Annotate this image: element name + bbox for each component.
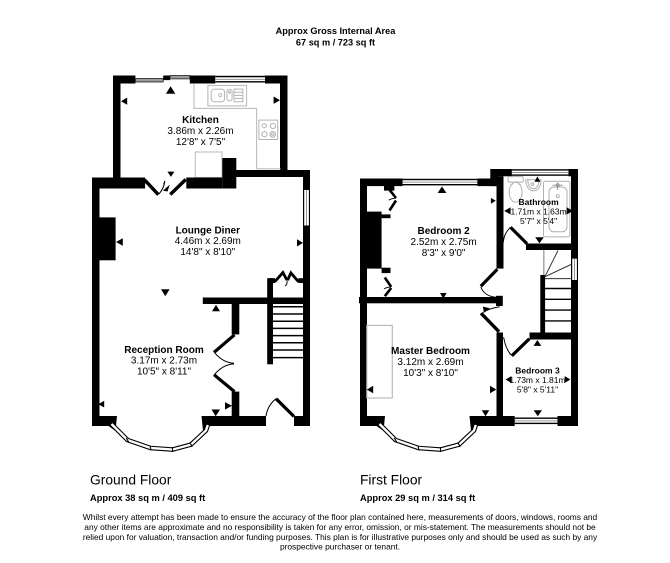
svg-text:5'8" x 5'11": 5'8" x 5'11" [517,385,558,395]
svg-text:Kitchen: Kitchen [182,115,219,126]
svg-text:10'5" x 8'11": 10'5" x 8'11" [137,366,192,377]
svg-text:Approx 38 sq m / 409 sq ft: Approx 38 sq m / 409 sq ft [90,493,205,503]
svg-text:Lounge Diner: Lounge Diner [176,225,241,236]
svg-text:relied upon for valuation, tra: relied upon for valuation, transaction a… [83,532,598,542]
svg-text:Bedroom 3: Bedroom 3 [515,366,560,376]
svg-text:Reception Room: Reception Room [124,345,204,356]
svg-text:4.46m x 2.69m: 4.46m x 2.69m [175,236,241,247]
svg-text:Approx Gross Internal Area: Approx Gross Internal Area [276,26,397,36]
svg-text:3.17m x 2.73m: 3.17m x 2.73m [131,356,197,367]
svg-text:3.12m x 2.69m: 3.12m x 2.69m [397,357,463,368]
svg-text:67 sq m / 723 sq ft: 67 sq m / 723 sq ft [296,37,375,47]
svg-text:1.71m x 1.63m: 1.71m x 1.63m [510,206,566,216]
svg-text:5'7" x 5'4": 5'7" x 5'4" [520,216,557,226]
svg-text:Bedroom 2: Bedroom 2 [417,226,470,237]
svg-text:prospective purchaser or tenan: prospective purchaser or tenant. [280,542,400,552]
svg-text:Approx 29 sq m / 314 sq ft: Approx 29 sq m / 314 sq ft [360,493,475,503]
svg-text:Ground Floor: Ground Floor [90,473,172,488]
svg-text:First Floor: First Floor [360,473,422,488]
svg-text:2.52m x 2.75m: 2.52m x 2.75m [411,237,477,248]
svg-text:3.86m x 2.26m: 3.86m x 2.26m [167,126,233,137]
svg-text:Whilst every attempt has been: Whilst every attempt has been made to en… [83,512,598,522]
svg-text:14'8" x 8'10": 14'8" x 8'10" [180,247,235,258]
svg-text:10'3" x 8'10": 10'3" x 8'10" [403,368,458,379]
svg-text:any other items are approximat: any other items are approximate and no r… [84,522,596,532]
svg-text:Master Bedroom: Master Bedroom [391,346,470,357]
svg-text:12'8" x 7'5": 12'8" x 7'5" [176,137,226,148]
svg-text:Bathroom: Bathroom [519,197,560,207]
svg-text:8'3" x 9'0": 8'3" x 9'0" [422,248,466,259]
